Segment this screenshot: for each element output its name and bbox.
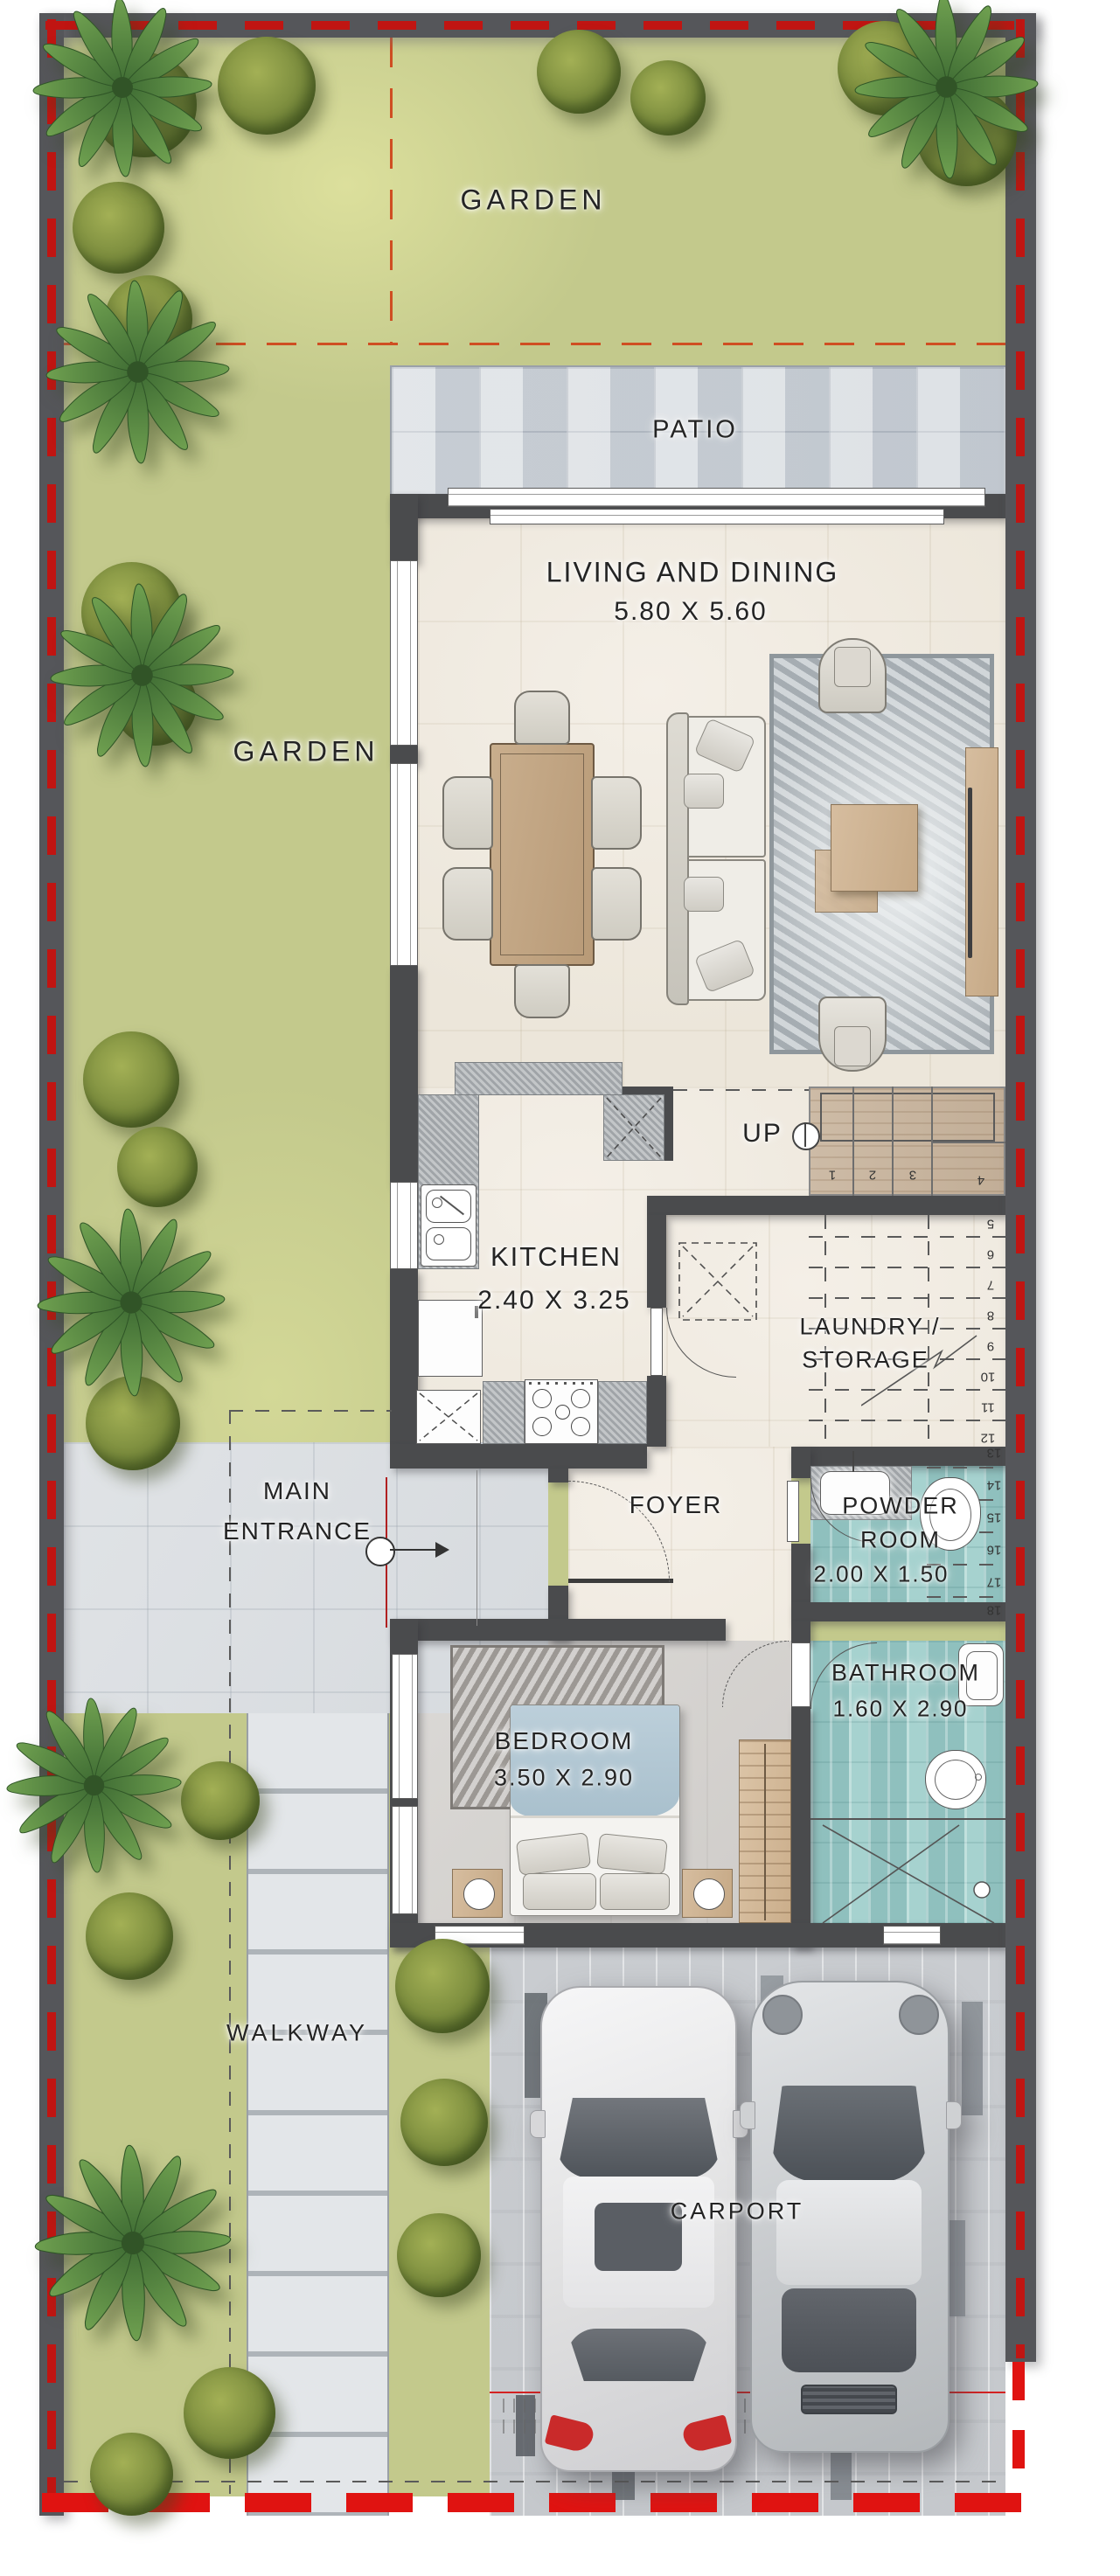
kitchen-window — [390, 1182, 418, 1269]
powder-room-dimensions: 2.00 X 1.50 — [814, 1561, 950, 1588]
kitchen-counter — [598, 1381, 647, 1444]
carport-label: CARPORT — [671, 2198, 804, 2225]
armchair — [818, 638, 887, 713]
bedroom-window — [392, 1654, 418, 1799]
palm-tree — [852, 0, 1040, 181]
laundry-label-line1: LAUNDRY / — [799, 1314, 940, 1341]
laundry-north-wall — [647, 1196, 1005, 1215]
bathroom-door — [791, 1642, 810, 1707]
kitchen-counter — [483, 1381, 525, 1444]
bush — [400, 2079, 488, 2166]
stair-break-line — [861, 1329, 984, 1425]
bathroom-west-wall — [791, 1707, 810, 1948]
car-mirror — [740, 2101, 755, 2129]
stair-number: 1 — [829, 1168, 836, 1183]
car-headlight — [762, 1995, 803, 2035]
porch-planter-dash — [229, 1410, 392, 1412]
base-cabinet — [416, 1390, 481, 1444]
living-window — [390, 763, 418, 966]
stair-number: 12 — [981, 1431, 996, 1446]
car-mirror — [946, 2101, 962, 2129]
bathroom-west-wall — [791, 1621, 810, 1642]
bathroom-dimensions: 1.60 X 2.90 — [833, 1696, 969, 1723]
coffee-table — [831, 804, 918, 892]
stair-rail — [820, 1093, 995, 1142]
stair-number: 18 — [987, 1603, 1002, 1618]
dining-table — [490, 743, 595, 966]
armchair — [818, 996, 887, 1072]
dining-chair — [514, 691, 570, 745]
paving-plank — [962, 2002, 983, 2115]
palm-tree — [4, 1696, 184, 1875]
foyer-label: FOYER — [630, 1491, 722, 1519]
kitchen-dimensions: 2.40 X 3.25 — [477, 1286, 630, 1316]
sofa — [666, 712, 769, 1005]
bush — [537, 30, 621, 114]
stair-number: 8 — [987, 1309, 994, 1323]
patio-label: PATIO — [652, 416, 738, 445]
stair-number: 17 — [987, 1575, 1002, 1590]
bush — [90, 2433, 173, 2516]
bush — [218, 37, 316, 135]
stair-number: 13 — [987, 1446, 1002, 1461]
living-dining-dimensions: 5.80 X 5.60 — [614, 597, 767, 627]
floor-plan-page: 1 2 3 4 UP 5 6 7 8 9 10 11 12 13 — [0, 0, 1120, 2576]
refrigerator — [418, 1300, 483, 1377]
kitchen-label: KITCHEN — [490, 1241, 622, 1273]
tv-console — [965, 747, 998, 996]
bush — [86, 1892, 173, 1980]
living-dining-label: LIVING AND DINING — [546, 557, 839, 589]
shower-enclosure — [810, 1816, 1005, 1928]
laundry-west-wall — [647, 1215, 666, 1308]
kitchen-corner-cabinet — [603, 1094, 664, 1161]
bedroom-north-wall — [390, 1619, 726, 1641]
stair-number: 2 — [869, 1168, 876, 1183]
wall-segment — [390, 745, 418, 764]
sliding-door-window — [448, 488, 985, 507]
powder-room-label-line1: POWDER — [842, 1493, 959, 1520]
stair-tread — [852, 1087, 854, 1196]
nightstand — [452, 1869, 503, 1918]
driveway-edge-dash — [64, 2481, 1005, 2482]
room-divider-dash — [673, 1089, 809, 1091]
car-rear-grille — [801, 2385, 897, 2414]
living-window — [390, 560, 418, 746]
laundry-west-wall — [647, 1376, 666, 1447]
bush — [181, 1761, 260, 1840]
bedroom-label: BEDROOM — [495, 1727, 634, 1755]
nightstand — [682, 1869, 733, 1918]
bush — [73, 182, 164, 274]
bush — [117, 1127, 198, 1207]
bush — [397, 2213, 481, 2297]
car-mirror — [530, 2110, 546, 2138]
kitchen-peninsula-counter — [455, 1062, 623, 1095]
car-white — [540, 1986, 737, 2472]
bathroom-toilet — [925, 1750, 986, 1809]
car-rear-window — [567, 2329, 711, 2381]
dining-chair — [591, 776, 642, 850]
stair-tread — [892, 1087, 894, 1196]
boundary-dash-right — [1016, 19, 1025, 2358]
laundry-label-line2: STORAGE — [802, 1347, 929, 1374]
dining-chair — [591, 867, 642, 941]
entrance-arrow-head-icon — [435, 1542, 449, 1558]
car-windshield — [556, 2098, 721, 2178]
porch-step-line — [477, 1470, 477, 1626]
stair-start-circle-icon — [792, 1122, 820, 1150]
bush — [395, 1939, 490, 2033]
rear-window — [883, 1926, 941, 1945]
up-label: UP — [742, 1119, 783, 1149]
stair-number: 9 — [987, 1339, 994, 1354]
wall-segment — [390, 1269, 418, 1447]
bush — [630, 60, 706, 135]
car-windshield — [769, 2086, 929, 2182]
stair-number: 15 — [987, 1510, 1002, 1525]
powder-room-label-line2: ROOM — [860, 1527, 941, 1554]
dining-chair — [442, 867, 493, 941]
garden-top-label: GARDEN — [461, 184, 607, 217]
stair-number: 16 — [987, 1543, 1002, 1558]
garden-divider-dash-vertical — [390, 38, 393, 345]
bush — [184, 2367, 275, 2459]
stair-landing-line — [931, 1142, 1005, 1143]
tv-screen — [968, 788, 972, 958]
sliding-door-panel — [490, 509, 944, 524]
entrance-arrow-shaft — [390, 1549, 441, 1551]
car-sunroof — [595, 2203, 682, 2271]
kitchen-sink — [421, 1184, 477, 1267]
stair-number: 3 — [909, 1168, 916, 1183]
bush — [83, 1031, 179, 1128]
walkway-label: WALKWAY — [226, 2020, 368, 2047]
powder-south-wall — [791, 1602, 1005, 1621]
stair-number: 4 — [977, 1173, 984, 1188]
powder-west-wall — [791, 1447, 810, 1478]
car-rear-window — [782, 2288, 916, 2372]
garden-left-label: GARDEN — [233, 736, 379, 768]
bedroom-dimensions: 3.50 X 2.90 — [494, 1765, 634, 1792]
stair-number: 5 — [987, 1217, 994, 1232]
palm-tree — [31, 0, 214, 179]
wall-segment — [390, 966, 418, 1184]
boundary-dash-bottom — [42, 2493, 1033, 2512]
car-headlight — [899, 1995, 939, 2035]
dining-chair — [514, 964, 570, 1018]
wardrobe — [739, 1739, 791, 1923]
foyer-front-wall — [548, 1469, 568, 1482]
powder-faucet — [852, 1451, 854, 1472]
palm-tree — [32, 2142, 233, 2343]
stair-number: 14 — [987, 1478, 1002, 1493]
main-entrance-label-line1: MAIN — [263, 1477, 331, 1505]
wall-segment — [390, 494, 418, 562]
bedroom-window — [392, 1806, 418, 1914]
dining-chair — [442, 776, 493, 850]
powder-door — [787, 1481, 799, 1542]
stair-number: 6 — [987, 1247, 994, 1262]
laundry-door — [650, 1308, 663, 1376]
stove-cooktop — [525, 1379, 598, 1444]
bathroom-label: BATHROOM — [831, 1660, 980, 1687]
main-entrance-label-line2: ENTRANCE — [223, 1517, 372, 1545]
kitchen-south-wall — [390, 1444, 647, 1469]
stair-number: 7 — [987, 1278, 994, 1293]
palm-tree — [48, 581, 236, 769]
palm-tree — [44, 278, 232, 466]
boundary-dash-right-lower — [1012, 2362, 1025, 2498]
stair-start-tick — [804, 1122, 806, 1147]
palm-tree — [35, 1206, 227, 1399]
